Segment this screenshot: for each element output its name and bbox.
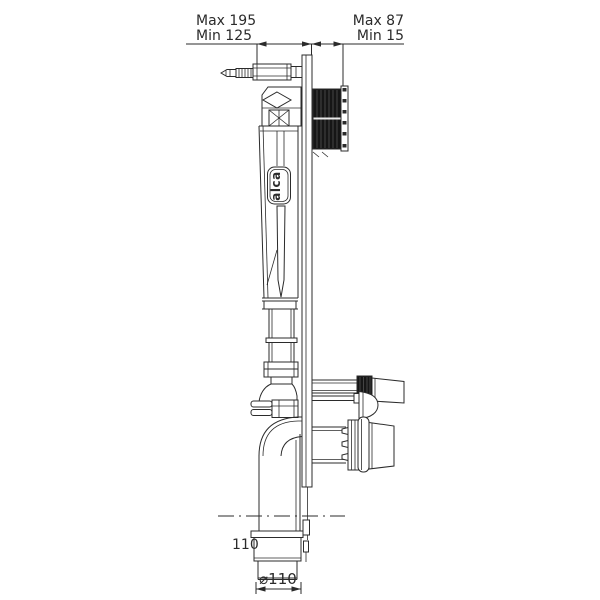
drain-elbow-and-pipe — [251, 417, 303, 580]
drain-outlet-connector — [312, 417, 394, 472]
rod-cylinder — [253, 64, 291, 80]
rod-collar — [291, 67, 302, 78]
socket-flange — [251, 531, 303, 538]
bracket-tab-lower — [251, 410, 272, 416]
offset-110-label: 110 — [232, 537, 259, 553]
arrowhead — [312, 41, 322, 46]
dim-label-min-125: Min 125 — [196, 28, 252, 44]
flush-pipe — [264, 309, 298, 384]
coupling-lower — [264, 369, 298, 377]
connector-ribbed-body — [348, 420, 359, 470]
brand-label: alca — [269, 171, 283, 200]
flush-outlet-pipe — [312, 380, 357, 393]
barb-tab — [342, 454, 348, 461]
frame-clip-upper — [303, 520, 310, 535]
dim-label-min-15: Min 15 — [357, 28, 404, 44]
technical-drawing-sheet: Max 195 Min 125 Max 87 Min 15 — [0, 0, 600, 600]
drain-elbow-outer — [259, 417, 302, 456]
drain-outlet-cone — [369, 423, 394, 470]
tank-left-wall — [259, 126, 264, 298]
rod-threaded-section — [236, 69, 253, 78]
coupling-upper — [264, 362, 298, 369]
barb-tab — [342, 441, 348, 448]
arrowhead — [302, 41, 312, 46]
drain-elbow-inner — [281, 437, 302, 457]
arrowhead — [334, 41, 344, 46]
pipe-joint — [266, 338, 297, 343]
frame-clip-lower — [304, 541, 309, 552]
block-end-plate — [341, 86, 348, 151]
dim-label-max-87: Max 87 — [353, 13, 404, 29]
barb-tab — [342, 428, 348, 435]
socket-body — [254, 538, 301, 562]
wall-inlet-threaded-block — [313, 86, 348, 157]
diameter-110-label: ⌀110 — [259, 570, 297, 588]
flush-outlet-connector — [312, 376, 404, 419]
frame-plate-body — [302, 55, 312, 487]
flush-elbow-and-bracket — [251, 384, 298, 418]
arrowhead — [257, 41, 267, 46]
tank-diagonal-detail — [267, 250, 277, 285]
flush-valve-blade — [277, 206, 285, 297]
flush-actuator-rod — [221, 64, 302, 80]
rod-tip — [221, 70, 236, 77]
connector-ring — [358, 417, 369, 472]
mounting-frame-plate — [302, 55, 312, 562]
block-bottom-hatch — [313, 152, 319, 157]
bracket-tab-upper — [251, 401, 272, 407]
rod-washer — [354, 394, 359, 404]
cistern-tank: alca — [259, 126, 298, 309]
cistern-side-view-drawing: Max 195 Min 125 Max 87 Min 15 — [0, 0, 600, 600]
dim-label-max-195: Max 195 — [196, 13, 256, 29]
fill-valve-housing — [262, 87, 301, 126]
